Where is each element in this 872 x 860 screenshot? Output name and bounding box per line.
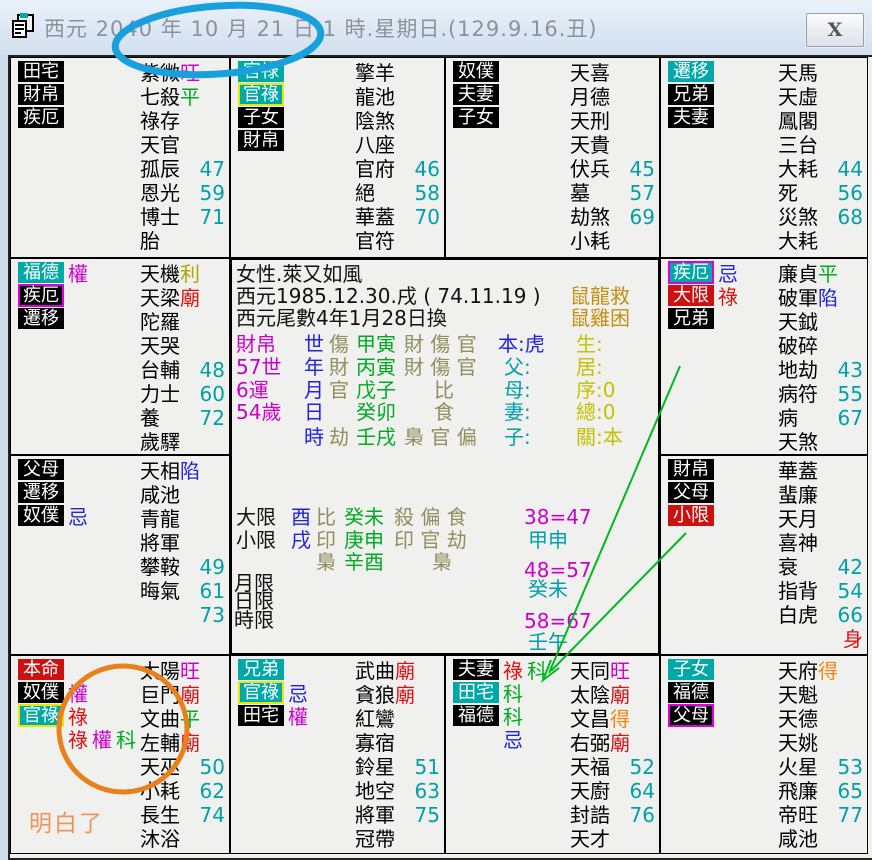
center-text: 壬午	[528, 631, 568, 653]
transform-mark: 權	[288, 701, 308, 730]
star-name: 小耗	[140, 779, 180, 803]
center-text: 財 傷 官	[404, 333, 477, 355]
center-text: 鼠雞困	[570, 307, 630, 329]
star-row: 小耗62	[140, 779, 226, 803]
star-name: 貪狼	[355, 683, 395, 707]
center-text: 丙寅	[356, 356, 396, 378]
palace-label: 大限	[668, 285, 714, 306]
star-row: 火星53	[778, 755, 864, 779]
palace-label: 子女	[453, 107, 499, 128]
palace-cell-chou[interactable]: 兄弟官祿忌田宅權武曲廟貪狼廟紅鸞寡宿鈴星51地空63將軍75冠帶	[230, 655, 445, 854]
center-text: 殺 偏 食	[394, 506, 467, 528]
palace-label-row: 財帛	[18, 83, 64, 106]
star-name: 月德	[570, 85, 610, 109]
palace-cell-wu[interactable]: 官祿官祿子女財帛擎羊龍池陰煞八座官府46絕58華蓋70官符	[230, 57, 445, 258]
palace-label: 父母	[668, 482, 714, 503]
star-row: 地空63	[355, 779, 441, 803]
star-row: 天月	[778, 507, 864, 531]
age-number: 69	[630, 205, 655, 229]
star-name: 天福	[570, 755, 610, 779]
palace-label-row: 奴僕忌	[18, 504, 88, 527]
palace-label-row: 奴僕	[453, 60, 499, 83]
palace-label: 本命	[18, 659, 64, 680]
star-name: 七殺	[140, 85, 180, 109]
center-text: 西元尾數4年1月28日換	[236, 307, 447, 329]
age-number: 44	[838, 157, 863, 181]
center-text: 壬戌	[356, 426, 396, 448]
titlebar: 西元 2040 年 10 月 21 日 1 時.星期日.(129.9.16.丑)…	[0, 0, 872, 55]
age-number: 72	[200, 406, 225, 430]
star-row: 陀羅	[140, 310, 226, 334]
star-row: 天德	[778, 707, 864, 731]
star-row: 破軍陷	[778, 286, 864, 310]
star-name: 紅鸞	[355, 707, 395, 731]
star-name: 陀羅	[140, 310, 180, 334]
star-row: 災煞68	[778, 205, 864, 229]
palace-label: 遷移	[18, 482, 64, 503]
star-name: 華蓋	[355, 205, 395, 229]
star-name: 文昌	[570, 707, 610, 731]
star-row: 文曲平	[140, 707, 226, 731]
star-row: 大耗44	[778, 157, 864, 181]
star-row: 73	[140, 603, 226, 627]
palace-label-row: 子女	[238, 106, 284, 129]
star-name: 天機	[140, 262, 180, 286]
star-row: 冠帶	[355, 827, 441, 851]
star-name: 恩光	[140, 181, 180, 205]
age-number: 54	[838, 579, 863, 603]
age-number: 68	[838, 205, 863, 229]
star-name: 沐浴	[140, 827, 180, 851]
center-text: 庚申	[344, 529, 384, 551]
palace-label-row: 兄弟	[668, 307, 738, 330]
star-name: 天哭	[140, 334, 180, 358]
star-row: 咸池	[140, 483, 226, 507]
star-row: 博士71	[140, 205, 226, 229]
age-number: 74	[200, 803, 225, 827]
palace-cell-zi[interactable]: 夫妻祿科田宅科福德科忌天同旺太陰廟文昌得右弼廟天福52天廚64封誥76天才	[445, 655, 660, 854]
star-column: 擎羊龍池陰煞八座官府46絕58華蓋70官符	[355, 61, 441, 253]
palace-label-row: 父母	[668, 704, 714, 727]
star-row: 華蓋70	[355, 205, 441, 229]
transform-mark: 忌	[68, 501, 88, 530]
palace-label-row: 田宅	[18, 60, 64, 83]
star-name: 天鉞	[778, 310, 818, 334]
star-name: 台輔	[140, 358, 180, 382]
age-number: 67	[838, 406, 863, 430]
palace-label: 田宅	[238, 705, 284, 726]
star-row: 天機利	[140, 262, 226, 286]
center-text: 鼠龍救	[570, 285, 630, 307]
transform-mark: 祿	[718, 281, 738, 310]
star-row: 青龍	[140, 507, 226, 531]
palace-label-row: 田宅科	[453, 681, 547, 704]
palace-label: 財帛	[18, 84, 64, 105]
star-name: 天府	[778, 659, 818, 683]
age-number: 61	[200, 579, 225, 603]
star-row: 身	[778, 627, 864, 651]
star-name: 天梁	[140, 286, 180, 310]
star-row: 右弼廟	[570, 731, 656, 755]
star-name: 冠帶	[355, 827, 395, 851]
app-icon	[10, 12, 36, 44]
palace-label-column: 本命奴僕權官祿祿祿權科	[18, 658, 136, 750]
star-row: 飛廉65	[778, 779, 864, 803]
star-row: 伏兵45	[570, 157, 656, 181]
center-text: 妻:	[504, 401, 531, 423]
center-text: 傷	[329, 333, 349, 355]
brightness-mark: 得	[610, 707, 630, 731]
palace-cell-mao[interactable]: 父母遷移奴僕忌天相陷咸池青龍將軍攀鞍49晦氣6173	[10, 455, 230, 655]
star-name: 天刑	[570, 109, 610, 133]
star-row: 天哭	[140, 334, 226, 358]
star-row: 劫煞69	[570, 205, 656, 229]
center-text: 財帛	[236, 333, 276, 355]
transform-mark: 權	[68, 258, 88, 287]
center-text: 癸未	[344, 506, 384, 528]
star-row: 官符	[355, 229, 441, 253]
star-row: 攀鞍49	[140, 555, 226, 579]
age-number: 57	[630, 181, 655, 205]
palace-label-row: 小限	[668, 504, 714, 527]
palace-label: 官祿	[18, 704, 64, 727]
star-row: 帝旺77	[778, 803, 864, 827]
palace-label-row: 遷移	[18, 307, 88, 330]
star-name: 太陽	[140, 659, 180, 683]
star-name: 墓	[570, 181, 590, 205]
palace-label-column: 兄弟官祿忌田宅權	[238, 658, 308, 727]
star-row: 鈴星51	[355, 755, 441, 779]
palace-label-row: 福德權	[18, 261, 88, 284]
star-row: 將軍	[140, 531, 226, 555]
transform-mark: 科	[527, 655, 547, 684]
star-name: 天虛	[778, 85, 818, 109]
center-text: 年	[304, 356, 324, 378]
age-number: 66	[838, 603, 863, 627]
palace-label: 子女	[668, 659, 714, 680]
palace-label-row: 大限祿	[668, 284, 738, 307]
star-name: 右弼	[570, 731, 610, 755]
star-row: 華蓋	[778, 459, 864, 483]
star-row: 咸池	[778, 827, 864, 851]
star-name: 攀鞍	[140, 555, 180, 579]
palace-cell-hai[interactable]: 子女福德父母天府得天魁天德天姚火星53飛廉65帝旺77咸池	[660, 655, 868, 854]
palace-label-row: 財帛	[668, 458, 714, 481]
palace-label: 疾厄	[18, 284, 64, 307]
palace-label-row: 夫妻祿科	[453, 658, 547, 681]
palace-label: 夫妻	[453, 659, 499, 680]
palace-cell-chen[interactable]: 福德權疾厄遷移天機利天梁廟陀羅天哭台輔48力士60養72歲驛	[10, 258, 230, 455]
center-text: 官	[329, 379, 349, 401]
center-text: 癸未	[528, 578, 568, 600]
star-column: 天相陷咸池青龍將軍攀鞍49晦氣6173	[140, 459, 226, 627]
star-row: 喜神	[778, 531, 864, 555]
star-name: 地空	[355, 779, 395, 803]
star-name: 廉貞	[778, 262, 818, 286]
star-name: 歲驛	[140, 430, 180, 454]
star-column: 紫微旺七殺平祿存天官孤辰47恩光59博士71胎	[140, 61, 226, 253]
star-name: 鈴星	[355, 755, 395, 779]
star-row: 天廚64	[570, 779, 656, 803]
palace-label-row: 父母	[668, 481, 714, 504]
palace-label-column: 財帛父母小限	[668, 458, 714, 527]
palace-label: 財帛	[668, 459, 714, 480]
age-number: 60	[200, 382, 225, 406]
palace-label-column: 田宅財帛疾厄	[18, 60, 64, 129]
palace-label: 奴僕	[453, 61, 499, 82]
star-row: 病67	[778, 406, 864, 430]
star-row: 紫微旺	[140, 61, 226, 85]
star-column: 天機利天梁廟陀羅天哭台輔48力士60養72歲驛	[140, 262, 226, 454]
palace-label: 官祿	[238, 83, 284, 106]
star-row: 沐浴	[140, 827, 226, 851]
palace-label: 田宅	[453, 682, 499, 703]
star-name: 天相	[140, 459, 180, 483]
palace-label-column: 子女福德父母	[668, 658, 714, 727]
center-text: 日	[304, 401, 324, 423]
center-text: 38=47	[524, 506, 592, 528]
star-row: 天貴	[570, 133, 656, 157]
star-name: 災煞	[778, 205, 818, 229]
star-name: 左輔	[140, 731, 180, 755]
close-button[interactable]: X	[806, 13, 864, 47]
star-row: 白虎66	[778, 603, 864, 627]
star-row: 破碎	[778, 334, 864, 358]
star-row: 月德	[570, 85, 656, 109]
star-name: 天德	[778, 707, 818, 731]
star-row: 力士60	[140, 382, 226, 406]
star-name: 文曲	[140, 707, 180, 731]
star-name: 陰煞	[355, 109, 395, 133]
star-name: 天廚	[570, 779, 610, 803]
age-number: 59	[200, 181, 225, 205]
star-name: 武曲	[355, 659, 395, 683]
center-text: 西元1985.12.30.戌 ( 74.11.19 )	[236, 285, 541, 307]
center-text: 比	[316, 506, 336, 528]
star-name: 龍池	[355, 85, 395, 109]
center-text: 月	[304, 379, 324, 401]
star-row: 封誥76	[570, 803, 656, 827]
brightness-mark: 旺	[180, 659, 200, 683]
palace-cell-yin[interactable]: 本命奴僕權官祿祿祿權科明白了太陽旺巨門廟文曲平左輔廟天巫50小耗62長生74沐浴	[10, 655, 230, 854]
palace-label-row: 官祿	[238, 60, 284, 83]
palace-label: 官祿	[238, 61, 284, 82]
star-row: 天福52	[570, 755, 656, 779]
window-title: 西元 2040 年 10 月 21 日 1 時.星期日.(129.9.16.丑)	[44, 13, 598, 43]
center-text: 印 官 劫	[394, 529, 467, 551]
center-text: 財	[329, 356, 349, 378]
star-column: 天同旺太陰廟文昌得右弼廟天福52天廚64封誥76天才	[570, 659, 656, 851]
star-row: 死56	[778, 181, 864, 205]
star-name: 劫煞	[570, 205, 610, 229]
star-row: 天巫50	[140, 755, 226, 779]
brightness-mark: 旺	[180, 61, 200, 85]
age-number: 62	[200, 779, 225, 803]
age-number: 43	[838, 358, 863, 382]
star-name: 青龍	[140, 507, 180, 531]
star-name: 長生	[140, 803, 180, 827]
brightness-mark: 廟	[610, 731, 630, 755]
palace-label-row: 福德科	[453, 704, 547, 727]
star-row: 大耗	[778, 229, 864, 253]
palace-label: 夫妻	[453, 84, 499, 105]
star-row: 絕58	[355, 181, 441, 205]
star-name: 紫微	[140, 61, 180, 85]
palace-label: 兄弟	[668, 84, 714, 105]
star-name: 破軍	[778, 286, 818, 310]
palace-label-column: 官祿官祿子女財帛	[238, 60, 284, 152]
center-text: 財 傷 官	[404, 356, 477, 378]
star-row: 胎	[140, 229, 226, 253]
star-row: 祿存	[140, 109, 226, 133]
brightness-mark: 旺	[610, 659, 630, 683]
brightness-mark: 廟	[610, 683, 630, 707]
age-number: 50	[200, 755, 225, 779]
brightness-mark: 廟	[180, 731, 200, 755]
center-text: 甲寅	[356, 333, 396, 355]
star-row: 天喜	[570, 61, 656, 85]
center-text: 57世	[236, 356, 281, 378]
brightness-mark: 平	[180, 707, 200, 731]
star-name: 天魁	[778, 683, 818, 707]
palace-label-row: 福德	[668, 681, 714, 704]
star-column: 華蓋蜚廉天月喜神衰42指背54白虎66身	[778, 459, 864, 651]
center-text: 生:	[576, 333, 603, 355]
star-name: 衰	[778, 555, 798, 579]
brightness-mark: 平	[180, 85, 200, 109]
star-name: 天才	[570, 827, 610, 851]
star-row: 官府46	[355, 157, 441, 181]
age-number: 63	[415, 779, 440, 803]
star-name: 大耗	[778, 157, 818, 181]
center-text: 時	[304, 426, 324, 448]
center-text: 58=67	[524, 610, 592, 632]
star-row: 衰42	[778, 555, 864, 579]
palace-label: 子女	[238, 107, 284, 128]
age-number: 75	[415, 803, 440, 827]
palace-label-row: 財帛	[238, 129, 284, 152]
center-text: 癸卯	[356, 401, 396, 423]
brightness-mark: 陷	[818, 286, 838, 310]
star-row: 指背54	[778, 579, 864, 603]
palace-label: 福德	[18, 262, 64, 283]
star-name: 晦氣	[140, 579, 180, 603]
center-text: 戊子	[356, 379, 396, 401]
star-name: 官符	[355, 229, 395, 253]
age-number: 42	[838, 555, 863, 579]
palace-cell-wei[interactable]: 奴僕夫妻子女天喜月德天刑天貴伏兵45墓57劫煞69小耗	[445, 57, 660, 258]
palace-label: 田宅	[18, 61, 64, 82]
palace-label: 遷移	[668, 61, 714, 82]
palace-label-row: 夫妻	[453, 83, 499, 106]
center-text: 辛酉	[344, 551, 384, 573]
palace-label: 福德	[668, 682, 714, 703]
star-row: 擎羊	[355, 61, 441, 85]
star-name: 絕	[355, 181, 375, 205]
star-row: 歲驛	[140, 430, 226, 454]
palace-label-row: 祿權科	[18, 727, 136, 750]
star-row: 長生74	[140, 803, 226, 827]
center-text: 印	[316, 529, 336, 551]
age-number: 76	[630, 803, 655, 827]
star-row: 天煞	[778, 430, 864, 454]
center-text: 父:	[504, 356, 531, 378]
star-row: 天虛	[778, 85, 864, 109]
star-row: 病符55	[778, 382, 864, 406]
star-row: 台輔48	[140, 358, 226, 382]
star-name: 天官	[140, 133, 180, 157]
star-name: 孤辰	[140, 157, 180, 181]
center-text: 酉	[291, 506, 311, 528]
star-row: 太陰廟	[570, 683, 656, 707]
star-row: 龍池	[355, 85, 441, 109]
star-column: 天府得天魁天德天姚火星53飛廉65帝旺77咸池	[778, 659, 864, 851]
palace-label-row: 疾厄	[18, 284, 88, 307]
palace-cell-si[interactable]: 田宅財帛疾厄紫微旺七殺平祿存天官孤辰47恩光59博士71胎	[10, 57, 230, 258]
star-name: 太陰	[570, 683, 610, 707]
star-name: 天馬	[778, 61, 818, 85]
handwritten-note: 明白了	[29, 804, 104, 838]
center-text: 比	[434, 379, 454, 401]
palace-label: 父母	[668, 704, 714, 727]
palace-label-row: 子女	[668, 658, 714, 681]
star-row: 天魁	[778, 683, 864, 707]
palace-label: 疾厄	[18, 107, 64, 128]
age-number: 64	[630, 779, 655, 803]
star-row: 武曲廟	[355, 659, 441, 683]
star-name: 封誥	[570, 803, 610, 827]
star-row: 晦氣61	[140, 579, 226, 603]
age-number: 73	[200, 603, 225, 627]
age-number: 71	[200, 205, 225, 229]
center-text: 本:虎	[498, 333, 545, 355]
star-row: 太陽旺	[140, 659, 226, 683]
center-text: 食	[434, 401, 454, 423]
star-name: 官府	[355, 157, 395, 181]
star-name: 天同	[570, 659, 610, 683]
star-row: 左輔廟	[140, 731, 226, 755]
star-row: 文昌得	[570, 707, 656, 731]
center-text: 大限	[236, 506, 276, 528]
center-text: 梟 官 偏	[404, 426, 477, 448]
age-number: 52	[630, 755, 655, 779]
age-number: 53	[838, 755, 863, 779]
star-name: 破碎	[778, 334, 818, 358]
center-text: 時限	[234, 609, 274, 631]
palace-label: 奴僕	[18, 682, 64, 703]
star-row: 陰煞	[355, 109, 441, 133]
center-text: 梟	[432, 551, 452, 573]
transform-mark: 科	[116, 724, 136, 753]
star-name: 白虎	[778, 603, 818, 627]
palace-cell-xu[interactable]: 財帛父母小限華蓋蜚廉天月喜神衰42指背54白虎66身	[660, 455, 868, 655]
palace-label: 夫妻	[668, 107, 714, 128]
age-number: 49	[200, 555, 225, 579]
star-name: 蜚廉	[778, 483, 818, 507]
transform-mark: 權	[92, 724, 112, 753]
star-name: 火星	[778, 755, 818, 779]
center-text: 小限	[236, 529, 276, 551]
star-name: 天貴	[570, 133, 610, 157]
star-row: 天官	[140, 133, 226, 157]
star-name: 天煞	[778, 430, 818, 454]
center-text: 劫	[329, 426, 349, 448]
star-row: 天同旺	[570, 659, 656, 683]
palace-cell-you[interactable]: 疾厄忌大限祿兄弟廉貞平破軍陷天鉞破碎地劫43病符55病67天煞	[660, 258, 868, 455]
palace-cell-shen[interactable]: 遷移兄弟夫妻天馬天虛鳳閣三台大耗44死56災煞68大耗	[660, 57, 868, 258]
star-name: 地劫	[778, 358, 818, 382]
star-column: 太陽旺巨門廟文曲平左輔廟天巫50小耗62長生74沐浴	[140, 659, 226, 851]
